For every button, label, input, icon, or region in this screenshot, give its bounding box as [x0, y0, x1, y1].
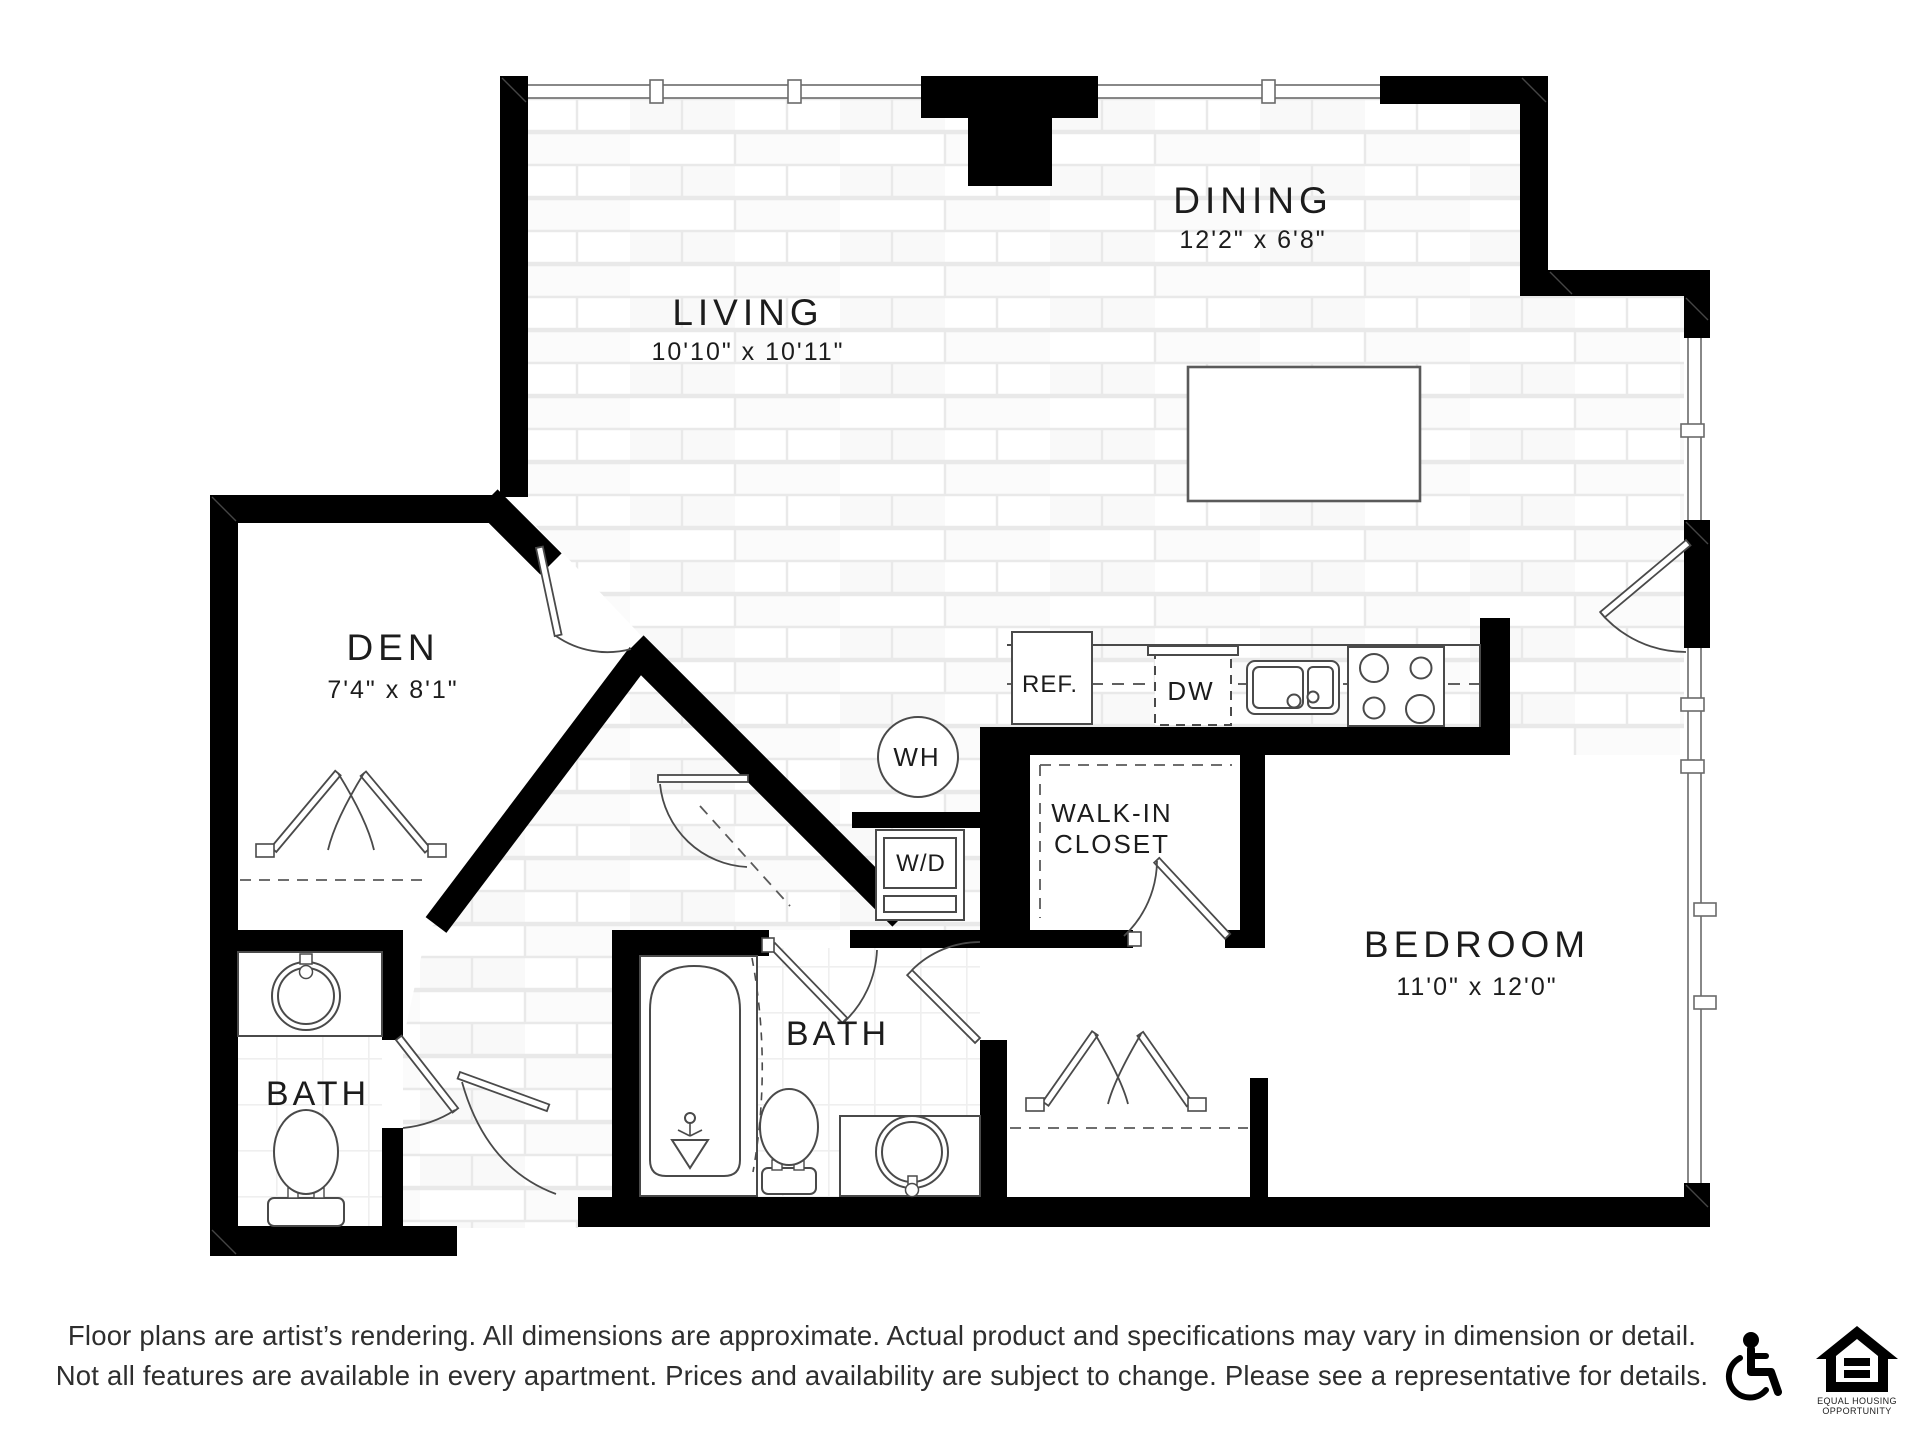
label-dining-dims: 12'2" x 6'8": [1179, 226, 1326, 254]
wall: [980, 727, 1007, 932]
label-dw: DW: [1167, 676, 1214, 706]
window-mullion: [1262, 80, 1275, 103]
eho-text-1: EQUAL HOUSING: [1817, 1396, 1897, 1406]
wall: [210, 1226, 457, 1256]
window-top-left: [526, 85, 923, 98]
wall: [1250, 1078, 1268, 1200]
kitchen-sink: [1247, 661, 1339, 714]
label-wh: WH: [893, 742, 940, 772]
door-leaf-entry-closet: [658, 775, 748, 782]
wall: [968, 76, 1052, 186]
label-bedroom: BEDROOM: [1364, 924, 1590, 965]
wall: [983, 1060, 1007, 1200]
accessibility-icon: [1729, 1332, 1778, 1398]
wall: [1520, 76, 1548, 296]
wall: [1007, 727, 1030, 948]
wall: [210, 495, 502, 523]
label-ref: REF.: [1022, 671, 1078, 698]
wall: [612, 930, 769, 956]
footer: Floor plans are artist’s rendering. All …: [56, 1320, 1898, 1416]
wall: [500, 76, 528, 497]
label-living: LIVING: [672, 292, 823, 333]
equal-housing-icon: EQUAL HOUSING OPPORTUNITY: [1816, 1326, 1898, 1416]
door-arcs-bedroom-closet: [1095, 1034, 1141, 1104]
label-wd: W/D: [896, 850, 946, 877]
wall: [1007, 930, 1133, 948]
label-dining: DINING: [1173, 180, 1333, 221]
label-walkin-1: WALK-IN: [1051, 798, 1172, 828]
window-mullion: [650, 80, 663, 103]
label-living-dims: 10'10" x 10'11": [651, 338, 844, 366]
label-walkin-2: CLOSET: [1054, 829, 1170, 859]
window-mullion: [1681, 698, 1704, 711]
door-leaf-bedroom-closet-left: [1043, 1031, 1098, 1105]
vanity-center-bath: [840, 1116, 980, 1197]
window-mullion: [1681, 424, 1704, 437]
wall: [210, 495, 238, 1256]
kitchen-island: [1188, 367, 1420, 501]
wall: [850, 930, 1007, 948]
door-leaf-bedroom-closet-right: [1137, 1032, 1192, 1106]
label-den-dims: 7'4" x 8'1": [327, 676, 458, 704]
wall: [1240, 727, 1265, 948]
disclaimer-line2: Not all features are available in every …: [56, 1360, 1709, 1391]
label-bath-center: BATH: [786, 1015, 890, 1053]
stove: [1348, 647, 1444, 726]
window-mullion: [1681, 760, 1704, 773]
wall: [1684, 296, 1710, 338]
door-arc-walkin: [1124, 861, 1157, 936]
dishwasher-counter-lip: [1148, 646, 1238, 655]
vanity-left-bath: [238, 952, 382, 1036]
wall: [1548, 270, 1710, 296]
window-mullion: [788, 80, 801, 103]
toilet-left-bath: [268, 1110, 344, 1226]
bathtub: [640, 956, 757, 1196]
wall: [578, 1197, 1710, 1227]
eho-text-2: OPPORTUNITY: [1822, 1406, 1891, 1416]
label-bath-left: BATH: [266, 1075, 370, 1113]
door-arc-den: [556, 636, 631, 652]
wall: [612, 930, 640, 1200]
wall: [852, 812, 980, 828]
window-mullion: [1694, 996, 1716, 1009]
floor-textures: [238, 98, 1684, 1228]
label-den: DEN: [346, 627, 439, 668]
wall: [1684, 520, 1710, 648]
door-leaf-walkin: [1154, 858, 1230, 939]
toilet-center-bath: [760, 1089, 818, 1194]
disclaimer-line1: Floor plans are artist’s rendering. All …: [68, 1320, 1696, 1351]
window-top-right: [1096, 85, 1382, 98]
floor-plan-svg: DINING 12'2" x 6'8" LIVING 10'10" x 10'1…: [0, 0, 1920, 1440]
wall: [1240, 727, 1510, 755]
window-mullion: [1694, 903, 1716, 916]
wall: [382, 1128, 403, 1228]
floor-plan-page: DINING 12'2" x 6'8" LIVING 10'10" x 10'1…: [0, 0, 1920, 1440]
label-bedroom-dims: 11'0" x 12'0": [1396, 973, 1557, 1001]
